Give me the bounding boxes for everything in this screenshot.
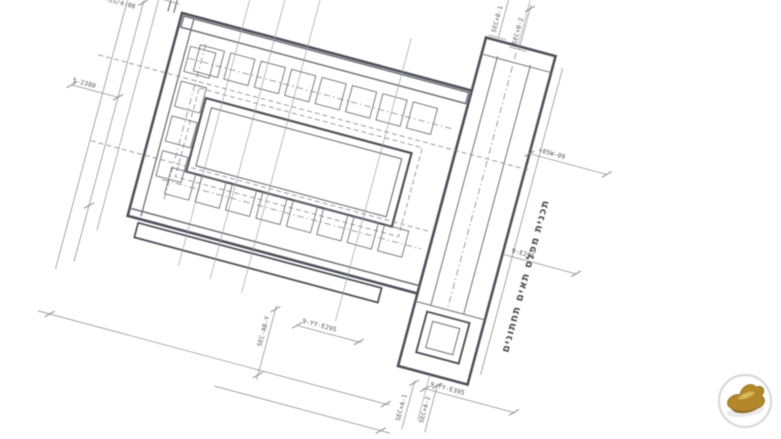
blueprint-canvas: תכנית מפלס תאים תחתונים W+85/4-085-2380S…	[0, 0, 781, 439]
blueprint-page: תכנית מפלס תאים תחתונים W+85/4-085-2380S…	[0, 0, 781, 439]
